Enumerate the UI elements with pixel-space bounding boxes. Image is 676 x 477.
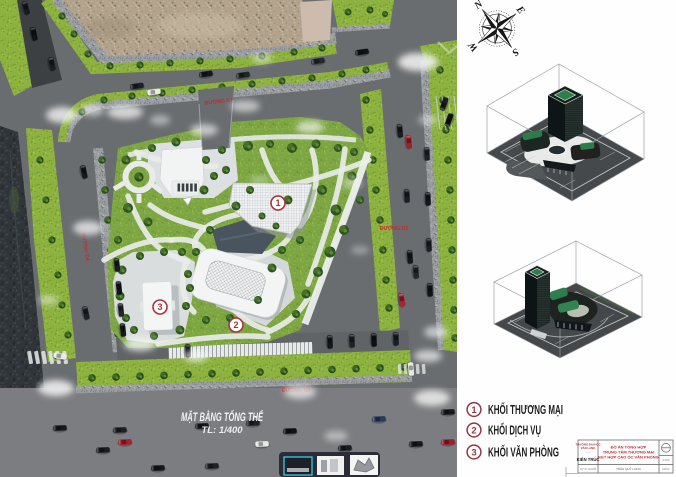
svg-text:KIẾN TRÚC: KIẾN TRÚC [577, 457, 600, 462]
svg-text:TRẦN QUÝ LONG: TRẦN QUÝ LONG [616, 467, 642, 471]
svg-text:MSSV: MSSV [662, 468, 669, 471]
svg-text:ĐƯỜNG D2: ĐƯỜNG D2 [380, 224, 408, 232]
svg-text:KHỐI DỊCH VỤ: KHỐI DỊCH VỤ [488, 423, 541, 438]
svg-text:2: 2 [233, 320, 238, 330]
svg-text:GVHD: GVHD [662, 459, 669, 462]
svg-text:KHỐI VĂN PHÒNG: KHỐI VĂN PHÒNG [488, 445, 559, 460]
svg-text:KHỐI THƯƠNG MẠI: KHỐI THƯƠNG MẠI [488, 402, 563, 417]
svg-text:3: 3 [157, 302, 162, 312]
svg-text:2: 2 [471, 425, 476, 436]
svg-text:3: 3 [471, 447, 476, 458]
svg-text:MẶT BẰNG TỔNG THỂ: MẶT BẰNG TỔNG THỂ [181, 409, 264, 424]
svg-text:------: ------ [585, 451, 590, 454]
svg-text:VĂN LANG: VĂN LANG [581, 445, 596, 450]
svg-text:1: 1 [275, 198, 280, 208]
svg-text:1: 1 [471, 405, 477, 416]
svg-text:KẾT HỢP CAO ỐC VĂN PHÒNG: KẾT HỢP CAO ỐC VĂN PHÒNG [598, 455, 658, 460]
svg-text:TL: 1/400: TL: 1/400 [201, 425, 243, 436]
